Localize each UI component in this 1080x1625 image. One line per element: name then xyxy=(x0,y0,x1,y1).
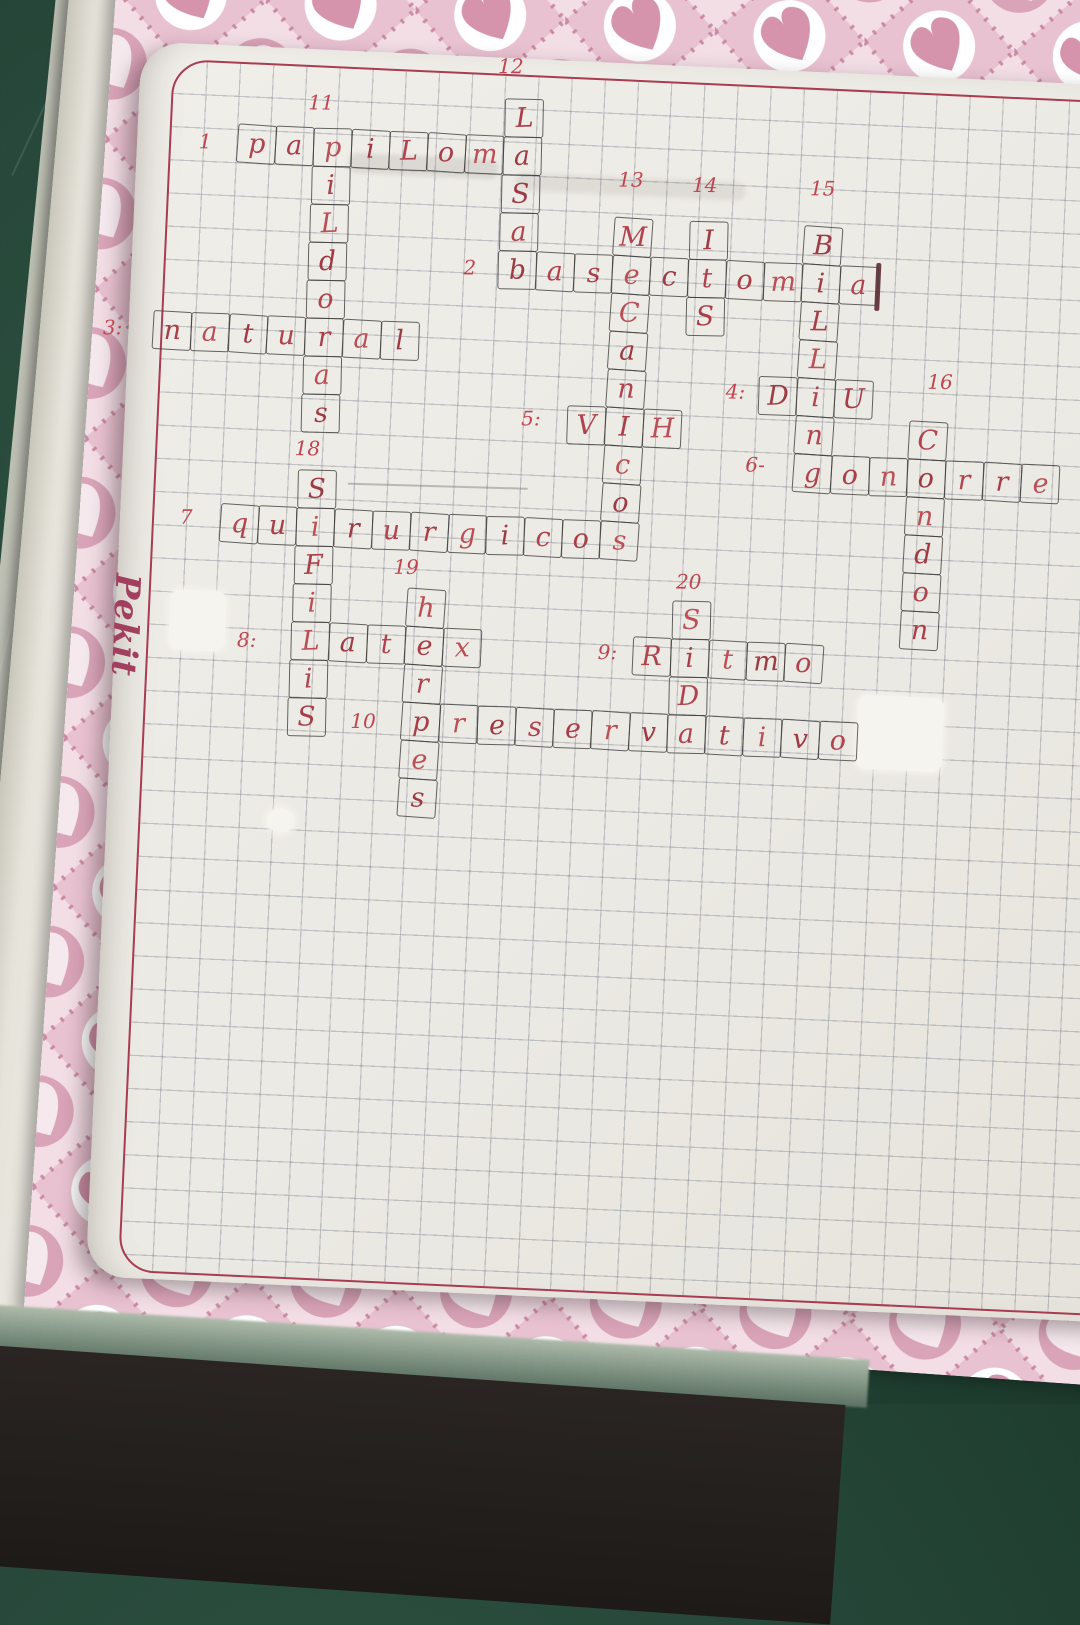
crossword-cell: r xyxy=(333,508,374,549)
clue-number: 7 xyxy=(179,505,192,529)
crossword-cell: S xyxy=(672,600,712,640)
crossword-cell: t xyxy=(227,313,269,355)
crossword-cell: r xyxy=(438,704,479,745)
crossword-letter: m xyxy=(770,268,796,295)
crossword-cell: o xyxy=(306,280,346,320)
crossword-cell: r xyxy=(981,461,1023,503)
crossword-cell: I xyxy=(603,406,645,448)
crossword-letter: e xyxy=(488,712,505,739)
clue-number: 19 xyxy=(393,555,419,579)
crossword-cell: n xyxy=(868,457,908,497)
crossword-letter: m xyxy=(472,141,498,168)
crossword-cell: i xyxy=(485,516,525,556)
crossword-letter: n xyxy=(163,317,181,344)
crossword-cell: F xyxy=(294,545,334,585)
correction-fluid-patch xyxy=(855,695,944,773)
crossword-cell: a xyxy=(838,265,879,306)
crossword-cell: e xyxy=(610,254,652,296)
crossword-letter: r xyxy=(416,671,429,698)
crossword-letter: S xyxy=(307,475,326,503)
crossword-cell: t xyxy=(704,715,745,756)
crossword-letter: s xyxy=(586,260,600,287)
crossword-cell: a xyxy=(274,125,315,166)
crossword-letter: o xyxy=(830,728,846,755)
crossword-letter: p xyxy=(323,134,341,162)
crossword-cell: o xyxy=(900,572,941,613)
clue-number: 14 xyxy=(692,173,718,197)
crossword-letter: t xyxy=(380,631,391,658)
crossword-letter: i xyxy=(304,665,313,692)
crossword-letter: n xyxy=(879,463,897,491)
crossword-letter: o xyxy=(573,526,590,553)
crossword-letter: C xyxy=(917,427,938,454)
crossword-letter: m xyxy=(753,648,779,675)
crossword-cell: d xyxy=(307,242,347,282)
crossword-letter: L xyxy=(808,346,826,373)
crossword-cell: s xyxy=(301,393,341,433)
crossword-letter: V xyxy=(576,412,596,439)
crossword-cell: r xyxy=(944,460,984,500)
clue-number: 8: xyxy=(237,627,257,651)
crossword-cell: i xyxy=(742,718,782,758)
crossword-letter: o xyxy=(438,139,455,166)
crossword-letter: c xyxy=(615,451,631,478)
crossword-cell: i xyxy=(670,638,710,678)
crossword-letter: a xyxy=(340,629,356,656)
crossword-cell: s xyxy=(396,777,438,819)
crossword-letter: u xyxy=(269,512,287,539)
crossword-letter: i xyxy=(311,514,320,541)
crossword-cell: t xyxy=(707,639,748,680)
crossword-letter: d xyxy=(318,248,336,276)
crossword-cell: e xyxy=(552,709,592,749)
crossword-letter: r xyxy=(317,324,331,351)
crossword-letter: i xyxy=(307,589,316,616)
crossword-letter: v xyxy=(641,719,656,746)
crossword-letter: n xyxy=(916,503,934,530)
crossword-letter: L xyxy=(301,627,320,655)
crossword-letter: r xyxy=(957,467,970,494)
crossword-cell: a xyxy=(499,212,539,252)
crossword-cell: n xyxy=(899,610,940,651)
crossword-letter: D xyxy=(677,682,699,710)
crossword-cell: m xyxy=(464,134,505,175)
crossword-letter: a xyxy=(202,319,219,346)
crossword-letter: i xyxy=(500,522,509,549)
crossword-letter: n xyxy=(910,617,928,644)
crossword-letter: e xyxy=(623,262,639,289)
crossword-letter: g xyxy=(803,460,821,487)
crossword-letter: l xyxy=(395,327,404,354)
crossword-letter: a xyxy=(314,362,331,389)
crossword-cell: v xyxy=(779,719,821,761)
crossword-cell: n xyxy=(152,310,193,351)
crossword-cell: L xyxy=(290,621,330,661)
crossword-letter: r xyxy=(452,710,465,737)
crossword-cell: s xyxy=(598,520,640,562)
clue-number: 9: xyxy=(598,640,618,664)
crossword-cell: a xyxy=(341,319,382,360)
crossword-cell: t xyxy=(366,624,406,664)
crossword-letter: a xyxy=(510,218,527,245)
crossword-letter: q xyxy=(231,510,249,537)
crossword-letter: U xyxy=(842,386,865,413)
crossword-letter: L xyxy=(810,308,828,335)
crossword-cell: l xyxy=(380,321,420,361)
clue-number: 11 xyxy=(308,91,334,115)
crossword-cell: c xyxy=(649,257,690,298)
photo-of-notebook: { "notebook": { "brand_logo": "Pekit", "… xyxy=(0,0,1080,1404)
crossword-letter: u xyxy=(277,322,295,349)
crossword-letter: p xyxy=(412,709,430,736)
clue-number: 20 xyxy=(676,570,702,594)
crossword-letter: i xyxy=(366,136,375,163)
crossword-cell: e xyxy=(1020,464,1061,505)
clue-number: 10 xyxy=(350,709,376,733)
clue-number: 3: xyxy=(103,315,123,339)
crossword-letter: I xyxy=(703,227,715,254)
crossword-cell: d xyxy=(902,534,943,575)
crossword-letter: R xyxy=(642,643,663,670)
crossword-cell: D xyxy=(758,376,798,416)
crossword-letter: e xyxy=(1032,470,1048,497)
crossword-cell: V xyxy=(566,405,606,445)
crossword-letter: D xyxy=(767,382,789,409)
crossword-letter: B xyxy=(812,232,832,259)
crossword-cell: v xyxy=(628,712,669,753)
crossword-cell: a xyxy=(666,714,706,754)
clue-number: 12 xyxy=(498,54,524,78)
crossword-cell: i xyxy=(292,583,332,623)
crossword-cell: R xyxy=(631,636,672,677)
crossword-letter: a xyxy=(286,132,302,159)
crossword-letter: v xyxy=(792,726,808,753)
crossword-cell: U xyxy=(833,379,874,420)
crossword-letter: i xyxy=(685,645,694,672)
crossword-cell: a xyxy=(502,136,542,176)
crossword-letter: L xyxy=(399,137,417,164)
crossword-letter: s xyxy=(410,784,424,811)
crossword-cell: i xyxy=(295,507,335,547)
crossword-cell: a xyxy=(302,355,342,395)
crossword-letter: t xyxy=(242,320,253,347)
crossword-letter: o xyxy=(737,267,753,294)
crossword-letter: i xyxy=(326,172,335,199)
crossword-letter: a xyxy=(678,720,695,747)
crossword-letter: s xyxy=(612,527,626,554)
crossword-letter: s xyxy=(313,400,328,427)
crossword-cell: a xyxy=(190,312,230,352)
crossword-letter: u xyxy=(382,517,400,544)
crossword-letter: c xyxy=(535,524,550,551)
crossword-cell: o xyxy=(818,721,859,762)
crossword-cell: g xyxy=(447,514,488,555)
crossword-cell: c xyxy=(602,444,644,486)
correction-fluid-patch xyxy=(168,589,227,651)
crossword-letter: n xyxy=(617,375,635,402)
crossword-letter: g xyxy=(458,521,475,548)
crossword-letter: S xyxy=(696,303,715,331)
crossword-cell: u xyxy=(257,505,298,546)
crossword-letter: a xyxy=(619,338,636,365)
crossword-cell: L xyxy=(797,339,839,381)
crossword-cell: b xyxy=(497,250,537,290)
crossword-letter: n xyxy=(805,422,823,449)
crossword-letter: L xyxy=(515,104,534,132)
crossword-cell: o xyxy=(830,455,871,496)
crossword-cell: q xyxy=(219,503,261,545)
crossword-letter: i xyxy=(816,270,825,297)
crossword-cell: I xyxy=(689,221,729,261)
crossword-letter: e xyxy=(416,633,432,660)
crossword-cell: L xyxy=(798,301,840,343)
crossword-cell: i xyxy=(795,377,837,419)
crossword-cell: x xyxy=(442,628,483,669)
crossword-letter: t xyxy=(722,647,733,674)
crossword-cell: p xyxy=(236,123,278,165)
crossword-letter: c xyxy=(661,263,676,290)
crossword-letter: o xyxy=(842,462,858,489)
crossword-cell: o xyxy=(724,260,765,301)
crossword-cell: S xyxy=(287,697,327,737)
crossword-letter: H xyxy=(650,415,674,442)
crossword-cell: n xyxy=(793,415,835,457)
clue-number: 5: xyxy=(521,406,541,430)
crossword-cell: S xyxy=(297,469,337,509)
crossword-letter: S xyxy=(297,703,316,731)
crossword-letter: i xyxy=(758,724,767,751)
crossword-letter: a xyxy=(547,258,563,285)
crossword-letter: C xyxy=(619,300,640,327)
crossword-cell: n xyxy=(605,368,647,410)
crossword-cell: g xyxy=(791,453,833,495)
crossword-letter: p xyxy=(248,130,266,157)
crossword-letter: S xyxy=(511,180,530,208)
crossword-letter: r xyxy=(347,515,360,542)
crossword-cell: a xyxy=(607,330,649,372)
clue-number: 16 xyxy=(927,370,953,394)
crossword-letter: h xyxy=(417,595,435,622)
crossword-cell: S xyxy=(685,297,725,337)
crossword-cell: e xyxy=(403,625,445,667)
crossword-letter: M xyxy=(619,224,647,251)
crossword-cell: r xyxy=(304,317,344,357)
clue-number: 1 xyxy=(198,129,211,153)
crossword-cell: L xyxy=(309,204,349,244)
crossword-cell: o xyxy=(561,519,601,559)
clue-number: 6- xyxy=(745,453,765,477)
crossword-cell: a xyxy=(535,251,576,292)
crossword-cell: L xyxy=(504,98,544,138)
crossword-letter: d xyxy=(914,541,931,568)
crossword-cell: m xyxy=(763,262,803,302)
crossword-cell: o xyxy=(600,482,642,524)
clue-number: 2 xyxy=(463,255,476,279)
crossword-cell: L xyxy=(388,131,428,171)
crossword-cell: n xyxy=(904,496,945,537)
crossword-letter: o xyxy=(795,650,812,677)
clue-number: 15 xyxy=(810,176,836,200)
crossword-cell: a xyxy=(328,622,369,663)
crossword-cell: e xyxy=(398,739,440,781)
crossword-cell: i xyxy=(800,263,842,305)
crossword-cell: u xyxy=(266,315,307,356)
crossword-cell: i xyxy=(350,129,391,170)
brand-logo-text: Pekit xyxy=(103,573,148,678)
crossword-letter: o xyxy=(913,579,929,606)
crossword-cell: i xyxy=(311,166,351,206)
crossword-cell: C xyxy=(609,292,651,334)
crossword-cell: o xyxy=(906,458,947,499)
crossword-cell: s xyxy=(514,707,555,748)
crossword-cell: p xyxy=(313,128,353,168)
crossword-letter: t xyxy=(701,265,713,292)
crossword-cell: u xyxy=(371,511,411,551)
crossword-cell: o xyxy=(426,132,468,174)
graph-paper-sheet: Pekit papiLoma1basectomia2natural3:DiU4:… xyxy=(0,0,1080,1394)
crossword-letter: e xyxy=(411,746,427,773)
crossword-cell: m xyxy=(746,642,786,682)
crossword-letter: o xyxy=(612,489,629,516)
crossword-letter: o xyxy=(918,465,934,492)
crossword-letter: r xyxy=(995,469,1008,496)
crossword-letter: I xyxy=(619,414,630,441)
crossword-cell: S xyxy=(501,174,541,214)
crossword-cell: M xyxy=(612,216,654,258)
crossword-letter: a xyxy=(851,272,867,299)
clue-number: 18 xyxy=(294,436,320,460)
crossword-letter: a xyxy=(514,142,531,169)
crossword-letter: F xyxy=(304,551,324,579)
crossword-cell: r xyxy=(402,663,444,705)
crossword-letter: S xyxy=(682,607,701,635)
crossword-letter: r xyxy=(604,717,617,744)
crossword-cell: p xyxy=(400,701,442,743)
crossword-cell: e xyxy=(477,706,517,746)
crossword-letter: t xyxy=(719,722,730,749)
crossword-cell: o xyxy=(783,643,825,685)
clue-number: 13 xyxy=(618,168,644,192)
red-margin-frame xyxy=(118,59,1080,1320)
crossword-cell: H xyxy=(642,408,683,449)
crossword-letter: L xyxy=(320,210,339,238)
crossword-letter: o xyxy=(317,286,334,313)
crossword-cell: h xyxy=(405,587,447,629)
crossword-cell: s xyxy=(573,253,613,293)
crossword-cell: B xyxy=(802,225,844,267)
crossword-letter: b xyxy=(508,256,526,284)
crossword-letter: r xyxy=(423,519,436,546)
clue-number: 4: xyxy=(726,380,746,404)
crossword-cell: t xyxy=(687,259,727,299)
crossword-letter: i xyxy=(811,384,820,411)
crossword-cell: r xyxy=(408,512,450,554)
crossword-letter: x xyxy=(454,634,469,661)
crossword-letter: e xyxy=(564,715,580,742)
crossword-cell: C xyxy=(907,420,948,461)
crossword-cell: D xyxy=(668,676,708,716)
crossword-letter: a xyxy=(354,326,370,353)
crossword-cell: r xyxy=(590,710,632,752)
crossword-cell: c xyxy=(523,517,564,558)
crossword-cell: i xyxy=(289,659,329,699)
crossword-letter: s xyxy=(527,714,541,741)
